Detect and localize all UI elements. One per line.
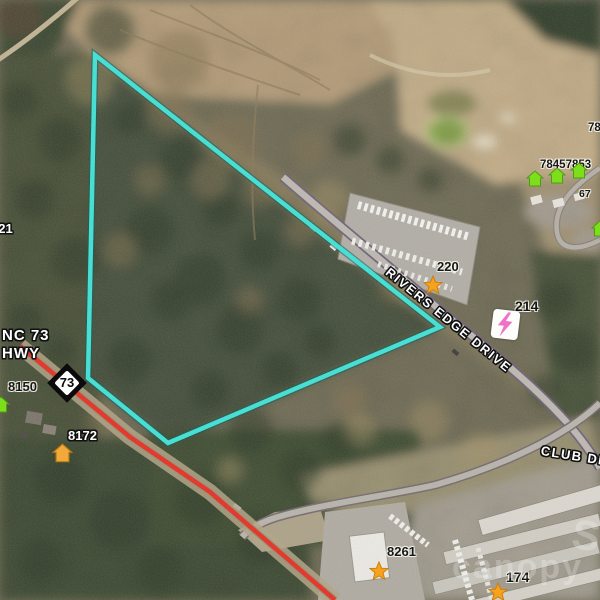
address-label-121-partial: 121 [0,222,13,235]
green-house-icon-53[interactable] [570,162,588,180]
road-label-nc73-line2: HWY [2,346,40,361]
address-label-78-partial: 78 [588,123,600,135]
address-label-8150: 8150 [8,380,37,393]
address-label-67-partial: 67 [579,189,591,200]
green-house-icon-784[interactable] [526,170,544,188]
green-house-icon-578[interactable] [548,167,566,185]
address-label-8261: 8261 [387,545,416,558]
address-label-8172: 8172 [68,429,97,442]
aerial-imagery [0,0,600,600]
star-marker-220[interactable] [423,275,443,295]
road-label-nc73-line1: NC 73 [2,328,50,343]
utility-lightning-icon[interactable] [490,308,520,340]
photo-grain [0,0,600,600]
aerial-map-viewport[interactable]: RIVERS EDGE DRIVE CLUB DR NC 73 HWY 8150… [0,0,600,600]
address-label-220: 220 [437,260,459,273]
green-house-icon-left-edge[interactable] [0,396,10,414]
star-marker-8261[interactable] [369,561,389,581]
mls-watermark-text: canopy [452,548,583,587]
shield-number: 73 [49,375,85,390]
route-73-shield-icon[interactable]: 73 [49,365,85,401]
green-house-icon-right-edge[interactable] [591,220,600,238]
orange-house-icon-8172[interactable] [52,443,73,464]
mls-watermark-swoosh: S [569,510,600,562]
